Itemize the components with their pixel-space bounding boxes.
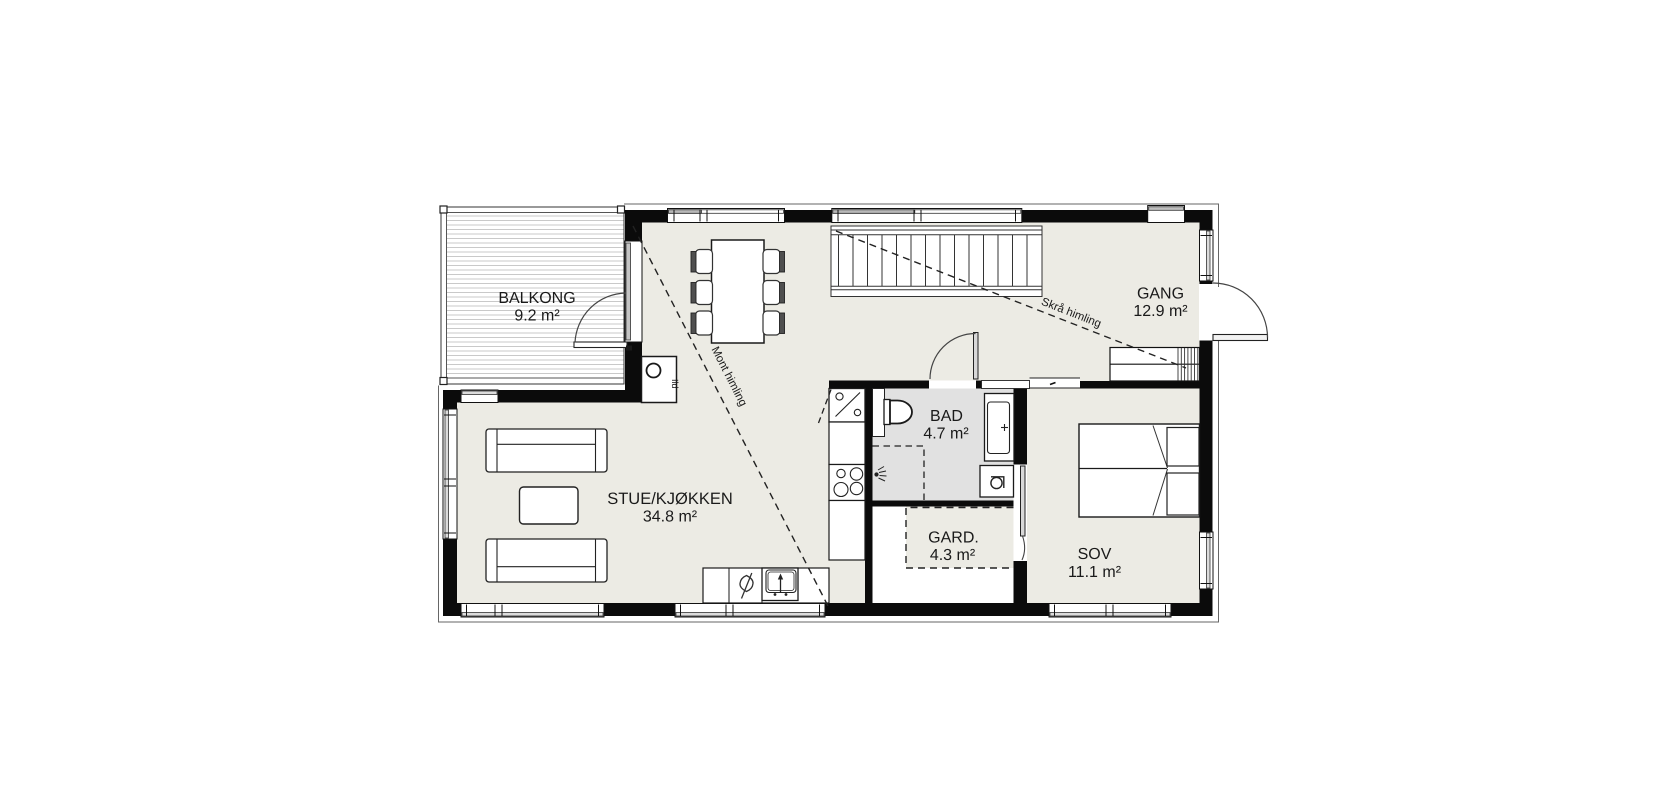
svg-text:11.1 m²: 11.1 m² <box>1068 564 1122 581</box>
svg-text:9.2 m²: 9.2 m² <box>514 308 560 325</box>
svg-text:Ild: Ild <box>670 379 680 389</box>
svg-text:SOV: SOV <box>1078 546 1112 563</box>
svg-text:4.7 m²: 4.7 m² <box>923 426 969 443</box>
svg-text:BAD: BAD <box>930 408 963 425</box>
svg-text:34.8 m²: 34.8 m² <box>643 509 698 526</box>
svg-text:12.9 m²: 12.9 m² <box>1133 303 1188 320</box>
svg-text:GARD.: GARD. <box>928 530 979 547</box>
svg-text:STUE/KJØKKEN: STUE/KJØKKEN <box>607 490 733 508</box>
svg-text:4.3 m²: 4.3 m² <box>930 547 976 564</box>
svg-text:GANG: GANG <box>1137 286 1184 303</box>
svg-text:BALKONG: BALKONG <box>498 290 575 307</box>
